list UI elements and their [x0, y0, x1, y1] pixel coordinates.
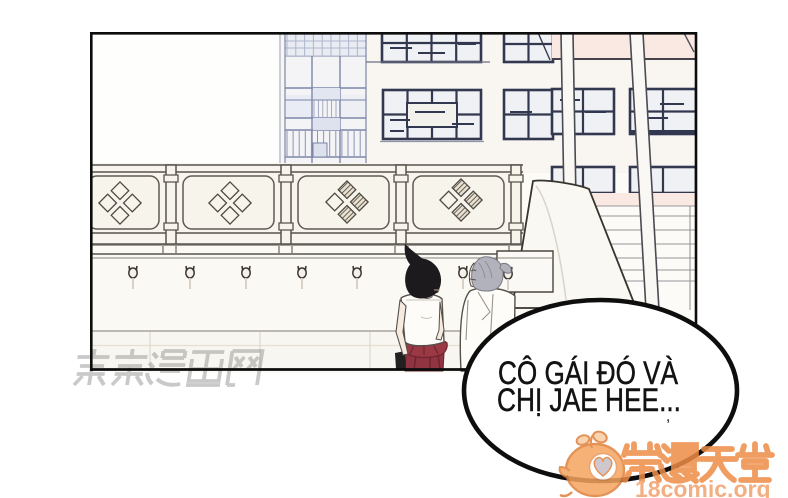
svg-text:18comic.org: 18comic.org	[635, 476, 771, 498]
svg-text:,: ,	[666, 408, 670, 425]
svg-text:CHỊ JAE HEE...: CHỊ JAE HEE...	[497, 382, 681, 418]
